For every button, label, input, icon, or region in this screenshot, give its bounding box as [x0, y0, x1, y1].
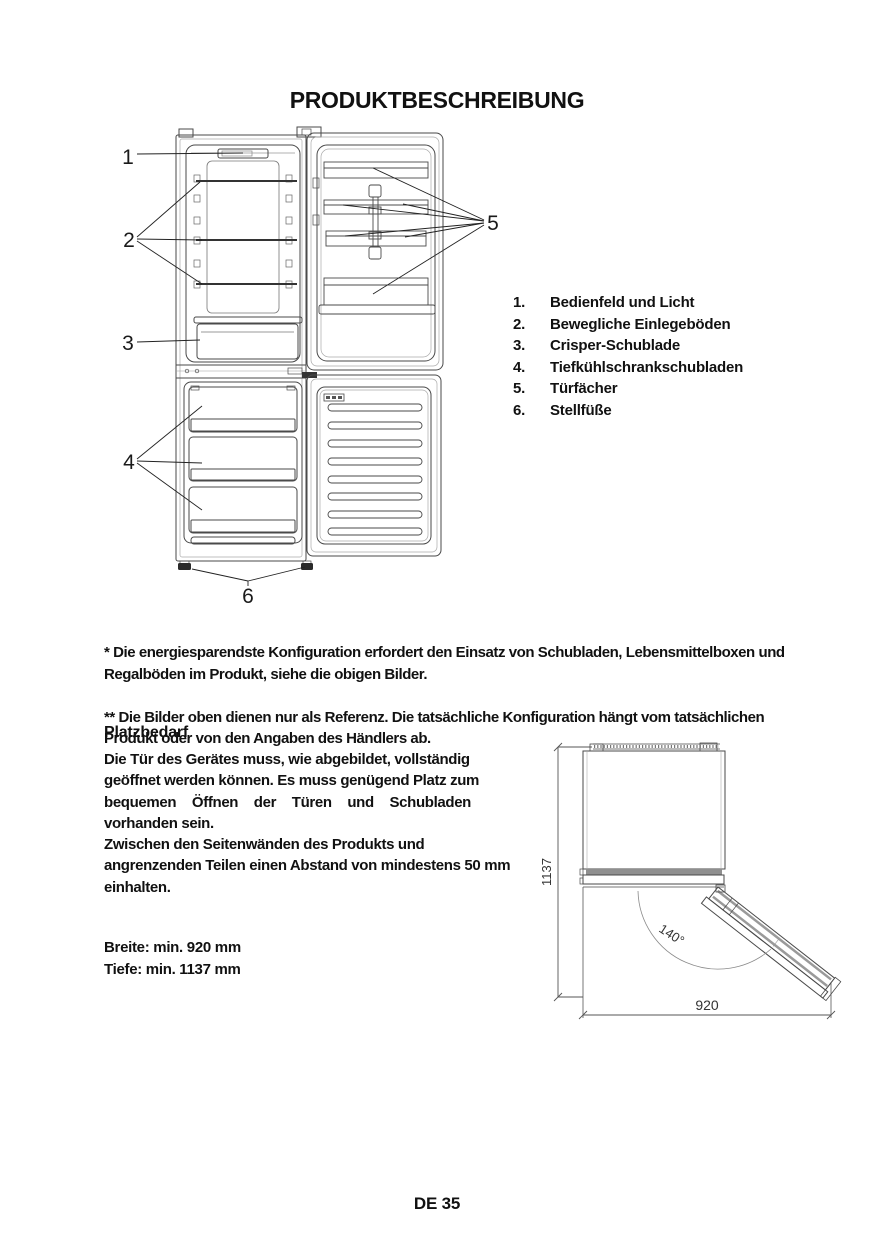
item-number: 4. [513, 357, 550, 379]
crisper-drawer [194, 317, 302, 359]
door-closed-edge [580, 869, 724, 887]
item-label: Bewegliche Einlegeböden [550, 314, 730, 336]
feet-icon [178, 561, 313, 570]
list-item: 6. Stellfüße [513, 400, 743, 422]
callout-6: 6 [242, 585, 254, 605]
list-item: 1. Bedienfeld und Licht [513, 292, 743, 314]
top-view-drawing [554, 743, 841, 1019]
section-heading: Platzbedarf [104, 724, 524, 742]
body-line: Die Tür des Gerätes muss, wie abgebildet… [104, 749, 524, 770]
body-line: vorhanden sein. [104, 813, 524, 834]
item-label: Crisper-Schublade [550, 335, 680, 357]
cabinet-top-view [583, 751, 725, 869]
page-title: PRODUKTBESCHREIBUNG [0, 87, 874, 114]
body-line: angrenzenden Teilen einen Abstand von mi… [104, 855, 524, 876]
item-label: Türfächer [550, 378, 617, 400]
parts-list: 1. Bedienfeld und Licht 2. Bewegliche Ei… [513, 292, 743, 422]
callout-2: 2 [123, 229, 135, 252]
dimension-labels: 1137 920 140° [539, 858, 719, 1013]
depth-requirement: Tiefe: min. 1137 mm [104, 959, 241, 981]
door-swing-diagram: 1137 920 140° [530, 735, 860, 1030]
callout-3: 3 [122, 332, 134, 355]
item-number: 5. [513, 378, 550, 400]
depth-dimension-label: 1137 [539, 858, 554, 886]
door-open-slab [701, 884, 840, 1000]
item-number: 2. [513, 314, 550, 336]
item-number: 3. [513, 335, 550, 357]
shelf-rails [194, 175, 292, 288]
item-label: Stellfüße [550, 400, 612, 422]
callout-1: 1 [122, 146, 134, 169]
fridge-drawing [176, 127, 443, 570]
item-number: 6. [513, 400, 550, 422]
body-line: einhalten. [104, 877, 524, 898]
cabinet-top-band [590, 743, 720, 751]
list-item: 3. Crisper-Schublade [513, 335, 743, 357]
callout-5: 5 [487, 212, 499, 235]
item-number: 1. [513, 292, 550, 314]
bottle-rack-icon [369, 185, 381, 259]
item-label: Tiefkühlschrankschubladen [550, 357, 743, 379]
freezer-door-ribs [328, 404, 422, 535]
freezer-door [307, 375, 441, 556]
angle-label: 140° [656, 921, 687, 948]
fridge-diagram: 1 2 3 4 5 6 [110, 120, 530, 605]
list-item: 4. Tiefkühlschrankschubladen [513, 357, 743, 379]
item-label: Bedienfeld und Licht [550, 292, 694, 314]
width-requirement: Breite: min. 920 mm [104, 937, 241, 959]
fridge-compartment [186, 145, 302, 362]
footnote-energy: * Die energiesparendste Konfiguration er… [104, 642, 874, 685]
space-requirements-section: Platzbedarf Die Tür des Gerätes muss, wi… [104, 724, 524, 898]
list-item: 2. Bewegliche Einlegeböden [513, 314, 743, 336]
body-line: geöffnet werden können. Es muss genügend… [104, 770, 524, 791]
cabinet-outline [176, 135, 306, 561]
body-line: Zwischen den Seitenwänden des Produkts u… [104, 834, 524, 855]
shelves [196, 181, 297, 284]
width-dimension-label: 920 [695, 997, 719, 1013]
list-item: 5. Türfächer [513, 378, 743, 400]
divider-band [176, 365, 317, 378]
body-line: bequemen Öffnen der Türen und Schubladen [104, 792, 471, 813]
manual-page: PRODUKTBESCHREIBUNG [0, 0, 874, 1241]
dimension-notes: Breite: min. 920 mm Tiefe: min. 1137 mm [104, 937, 241, 981]
callout-4: 4 [123, 451, 135, 474]
page-number: DE 35 [0, 1194, 874, 1214]
